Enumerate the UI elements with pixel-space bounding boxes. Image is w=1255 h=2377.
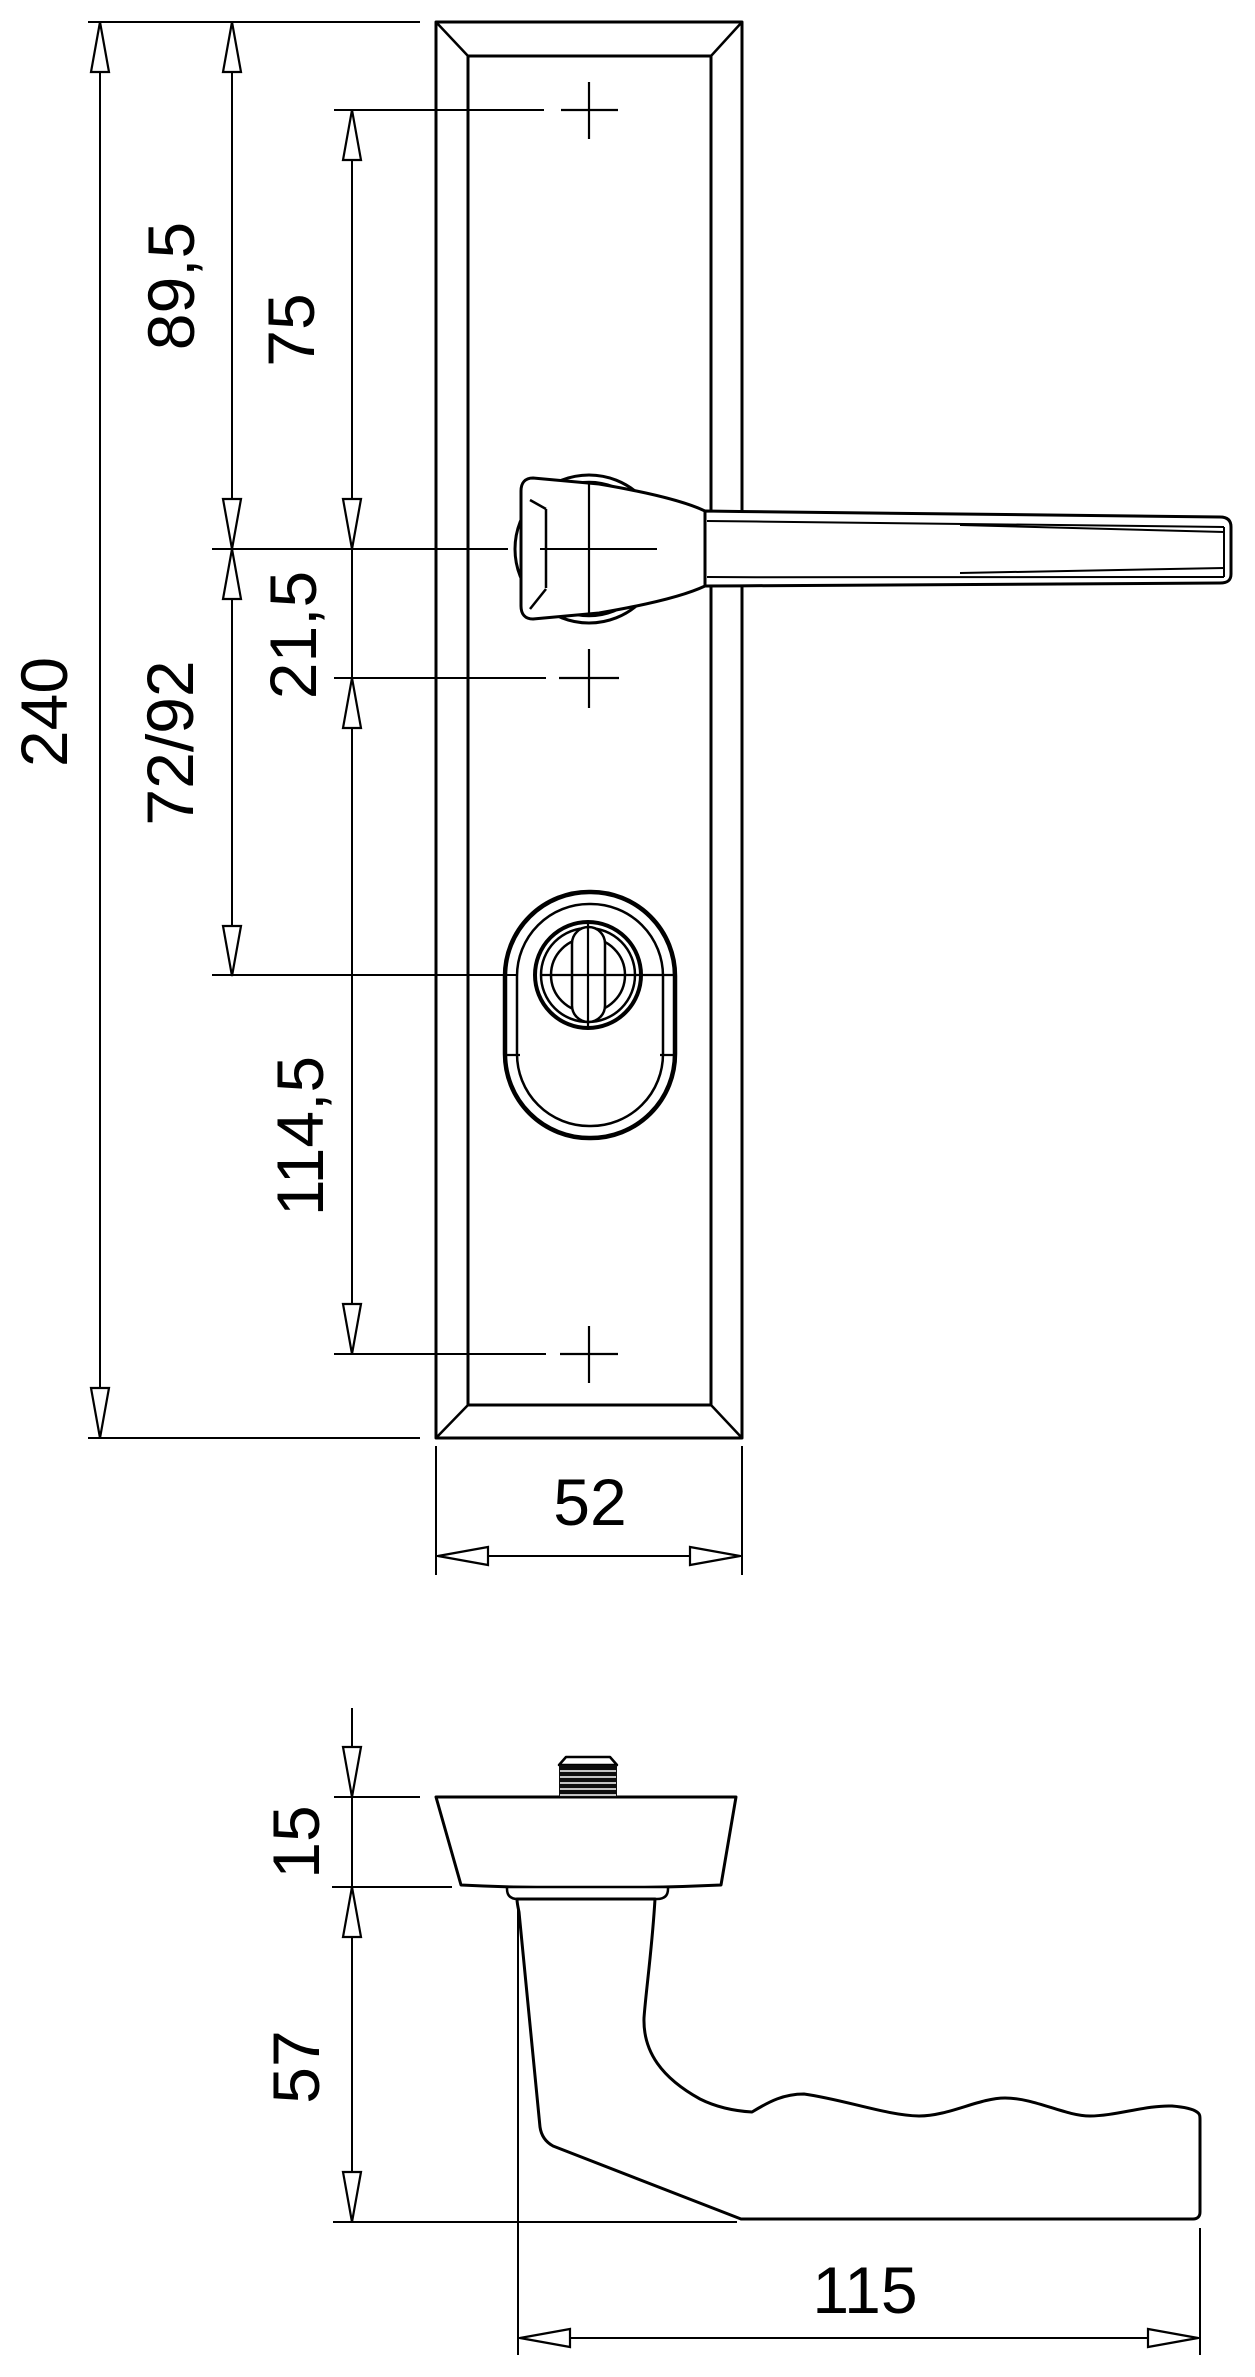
- dim-label-hole-to-axis: 75: [254, 293, 328, 366]
- arrowhead-right: [1148, 2329, 1198, 2347]
- arrowhead-right: [690, 1547, 740, 1565]
- technical-drawing-page: 240 89,5 75 21,5 72/92 114,5 52: [0, 0, 1255, 2377]
- side-view: 15 57 115: [259, 1708, 1200, 2355]
- arrowhead-up: [343, 1887, 361, 1937]
- dim-label-flange-height: 15: [259, 1805, 333, 1878]
- plate-flange-section: [436, 1757, 736, 1899]
- backplate-outer-edge: [436, 22, 742, 1438]
- arrowhead-left: [520, 2329, 570, 2347]
- dim-label-overall-height: 240: [7, 657, 81, 767]
- arrowhead-up: [343, 678, 361, 728]
- dim-label-axis-to-cylinder: 21,5: [256, 571, 330, 699]
- rosette-collar: [507, 1887, 668, 1899]
- dimension-drawing: 240 89,5 75 21,5 72/92 114,5 52: [0, 0, 1255, 2377]
- threaded-spindle-stud: [559, 1757, 617, 1797]
- arrowhead-down: [91, 1388, 109, 1438]
- stud-thread-block: [559, 1765, 617, 1797]
- security-rosette-oval: [503, 892, 677, 1138]
- stud-cap: [559, 1757, 617, 1765]
- dim-label-lever-length: 115: [812, 2253, 917, 2327]
- arrowhead-down: [343, 1304, 361, 1354]
- dim-label-neck-projection: 57: [259, 2030, 333, 2103]
- backplate: [436, 22, 742, 1438]
- arrowhead-up: [91, 22, 109, 72]
- dim-label-cylinder-to-bottom: 114,5: [263, 1056, 337, 1216]
- dim-label-backset: 72/92: [133, 660, 207, 825]
- flange-profile: [436, 1797, 736, 1888]
- arrowhead-down: [343, 2172, 361, 2222]
- arrowhead-up: [223, 22, 241, 72]
- arrowhead-up: [343, 110, 361, 160]
- lever-edge-line-bottom: [707, 577, 1224, 578]
- dim-label-top-to-axis: 89,5: [134, 222, 208, 350]
- lever-handle-side-profile: [517, 1899, 1200, 2219]
- arrowhead-down: [343, 1747, 361, 1797]
- dim-label-plate-width: 52: [553, 1465, 626, 1539]
- arrowhead-down: [223, 926, 241, 976]
- arrowhead-up: [223, 549, 241, 599]
- arrowhead-left: [438, 1547, 488, 1565]
- front-view: 240 89,5 75 21,5 72/92 114,5 52: [7, 22, 1231, 1575]
- arrowhead-down: [223, 499, 241, 549]
- arrowhead-down: [343, 499, 361, 549]
